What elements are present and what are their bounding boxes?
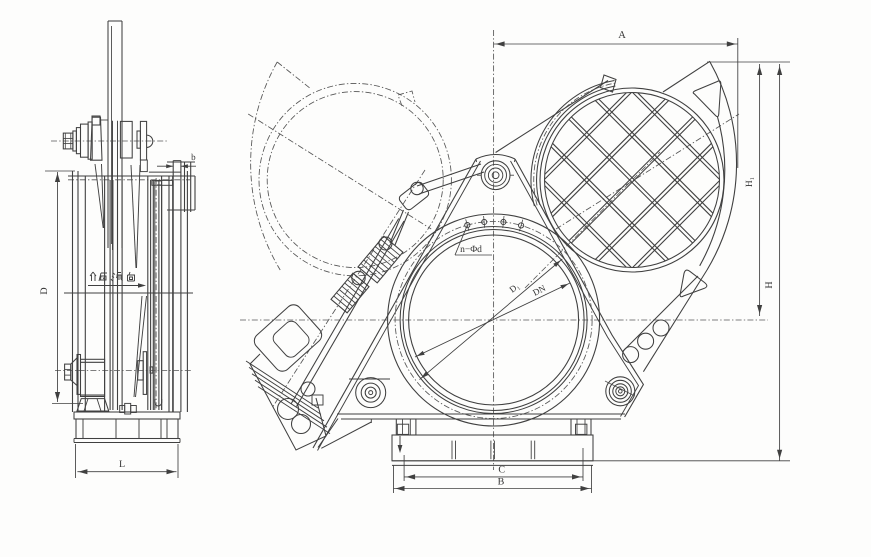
svg-text:A: A (618, 30, 626, 41)
svg-text:D: D (39, 287, 50, 294)
svg-text:n−Φd: n−Φd (460, 245, 482, 255)
svg-text:L: L (119, 459, 125, 470)
svg-text:H₁: H₁ (745, 177, 755, 187)
svg-text:b: b (191, 152, 196, 162)
svg-text:H: H (764, 281, 775, 288)
svg-text:C: C (498, 465, 505, 476)
svg-text:B: B (498, 477, 505, 488)
